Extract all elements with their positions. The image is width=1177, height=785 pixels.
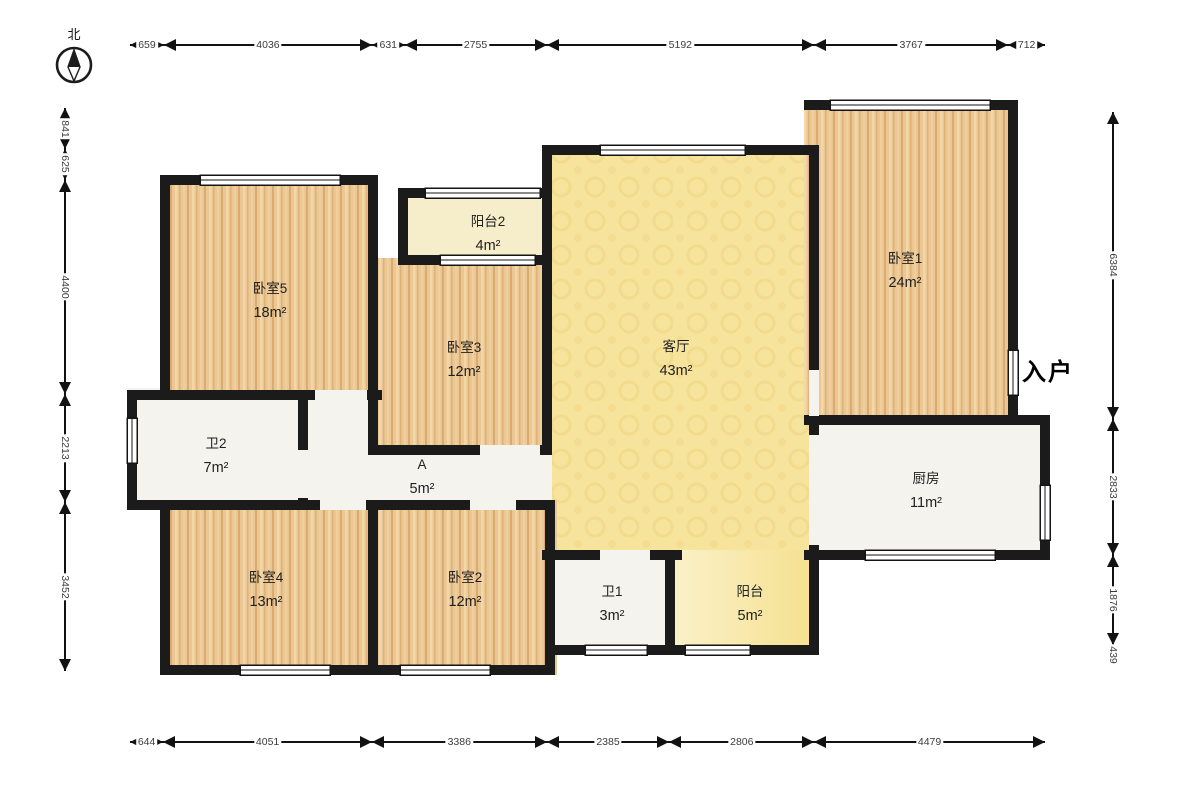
wall: [160, 500, 170, 675]
room-name-bathroom2: 卫2: [205, 436, 226, 451]
dimension-arrow: [59, 659, 71, 671]
dimension-arrow: [59, 394, 71, 406]
window-center-line: [865, 554, 995, 555]
room-area-bathroom2: 7m²: [204, 460, 229, 476]
room-area-bedroom5: 18m²: [253, 305, 286, 321]
door-opening: [480, 445, 540, 455]
door-opening: [470, 500, 516, 510]
wall: [809, 550, 819, 655]
wall: [160, 175, 170, 400]
dimension-value-top-3: 2755: [462, 39, 489, 51]
room-name-living-room: 客厅: [663, 338, 690, 354]
floor-plan: 卧室518m²阳台24m²卧室312m²客厅43m²卧室124m²卫27m²A5…: [0, 0, 1177, 785]
window-center-line: [830, 104, 990, 105]
room-floor: [550, 555, 675, 655]
dimension-value-bottom-0: 644: [136, 736, 158, 748]
dimension-value-left-0: 841: [59, 118, 71, 140]
dimension-arrow: [360, 39, 372, 51]
dimension-value-top-0: 659: [136, 39, 158, 51]
wall: [368, 500, 378, 675]
window-center-line: [200, 179, 340, 180]
dimension-arrow: [360, 736, 372, 748]
dimension-value-bottom-2: 3386: [446, 736, 473, 748]
dimension-arrow: [547, 39, 559, 51]
door-opening: [809, 435, 819, 545]
room-name-balcony2: 阳台2: [471, 214, 506, 229]
dimension-arrow: [1107, 633, 1119, 645]
room-area-kitchen: 11m²: [910, 495, 942, 511]
dimension-arrow: [1107, 112, 1119, 124]
dimension-value-top-5: 3767: [898, 39, 925, 51]
dimension-value-right-1: 2833: [1107, 473, 1119, 500]
dimension-arrow: [59, 490, 71, 502]
dimension-value-top-2: 631: [377, 39, 399, 51]
dimension-value-bottom-3: 2385: [594, 736, 621, 748]
room-area-bedroom1: 24m²: [888, 275, 921, 291]
entry-label: 入户: [1022, 352, 1074, 387]
room-area-bedroom4: 13m²: [249, 594, 282, 610]
door-opening: [600, 550, 650, 560]
window-center-line: [440, 259, 535, 260]
room-name-bedroom2: 卧室2: [448, 569, 483, 585]
room-area-hall-a: 5m²: [410, 481, 435, 497]
dimension-arrow: [405, 39, 417, 51]
room-name-bathroom1: 卫1: [601, 584, 622, 599]
wall: [665, 550, 675, 655]
room-name-bedroom4: 卧室4: [249, 569, 284, 585]
dimension-arrow: [669, 736, 681, 748]
dimension-line-right: 638428331876439: [1104, 112, 1122, 666]
room-area-bedroom3: 12m²: [447, 364, 480, 380]
window-center-line: [400, 669, 490, 670]
room-floor: [160, 500, 378, 675]
wall: [368, 175, 378, 455]
dimension-value-top-6: 712: [1016, 39, 1038, 51]
dimension-arrow: [547, 736, 559, 748]
room-name-kitchen: 厨房: [913, 471, 940, 486]
dimension-arrow: [59, 180, 71, 192]
dimension-arrow: [59, 502, 71, 514]
window-center-line: [585, 649, 647, 650]
dimension-value-left-2: 4400: [59, 273, 71, 300]
dimension-arrow: [802, 736, 814, 748]
dimension-value-bottom-1: 4051: [254, 736, 281, 748]
dimension-line-left: 841625440022133452: [56, 108, 74, 671]
window-center-line: [240, 669, 330, 670]
room-name-bedroom5: 卧室5: [253, 280, 288, 296]
wall: [398, 188, 408, 265]
door-opening: [320, 500, 366, 510]
window-center-line: [1012, 350, 1013, 395]
door-opening: [298, 450, 308, 498]
dimension-value-left-4: 3452: [59, 573, 71, 600]
dimension-arrow: [535, 736, 547, 748]
room-name-bedroom3: 卧室3: [447, 339, 482, 355]
door-opening: [809, 370, 819, 416]
room-area-balcony: 5m²: [738, 608, 763, 624]
dimension-value-right-3: 439: [1107, 645, 1119, 667]
wall: [545, 500, 555, 675]
room-area-living-room: 43m²: [659, 363, 692, 379]
dimension-value-top-1: 4036: [254, 39, 281, 51]
dimension-arrow: [535, 39, 547, 51]
dimension-arrow: [372, 736, 384, 748]
dimension-arrow: [802, 39, 814, 51]
dimension-arrow: [814, 39, 826, 51]
dimension-value-left-1: 625: [59, 154, 71, 176]
room-name-balcony: 阳台: [737, 584, 764, 599]
dimension-arrow: [164, 39, 176, 51]
dimension-arrow: [1107, 407, 1119, 419]
dimension-value-top-4: 5192: [667, 39, 694, 51]
door-opening: [542, 455, 552, 500]
compass-icon: [53, 44, 95, 86]
floor-plan-page: 卧室518m²阳台24m²卧室312m²客厅43m²卧室124m²卫27m²A5…: [0, 0, 1177, 785]
dimension-arrow: [1033, 736, 1045, 748]
compass-north-label: 北: [46, 24, 102, 43]
dimension-arrow: [814, 736, 826, 748]
dimension-arrow: [996, 39, 1008, 51]
room-floor: [809, 420, 1050, 560]
dimension-arrow: [1107, 543, 1119, 555]
dimension-value-bottom-5: 4479: [916, 736, 943, 748]
dimension-arrow: [657, 736, 669, 748]
room-floor: [368, 500, 557, 675]
room-floor: [665, 550, 819, 655]
window-center-line: [685, 649, 750, 650]
dimension-arrow: [1107, 419, 1119, 431]
wall: [160, 665, 555, 675]
dimension-value-right-2: 1876: [1107, 586, 1119, 613]
window-center-line: [1044, 485, 1045, 540]
dimension-arrow: [163, 736, 175, 748]
window-center-line: [600, 149, 745, 150]
room-area-balcony2: 4m²: [476, 238, 501, 254]
door-opening: [315, 390, 367, 400]
dimension-value-right-0: 6384: [1107, 252, 1119, 279]
room-name-hall-a: A: [417, 457, 426, 472]
dimension-value-bottom-4: 2806: [728, 736, 755, 748]
room-name-bedroom1: 卧室1: [888, 250, 923, 266]
window-center-line: [425, 192, 540, 193]
dimension-arrow: [1107, 555, 1119, 567]
window-center-line: [131, 418, 132, 463]
room-floor: [368, 258, 552, 455]
dimension-line-bottom: 64440513386238528064479: [130, 733, 1045, 751]
dimension-arrow: [59, 382, 71, 394]
dimension-value-left-3: 2213: [59, 435, 71, 462]
compass: 北: [46, 24, 102, 96]
room-area-bathroom1: 3m²: [600, 608, 625, 624]
room-area-bedroom2: 12m²: [448, 594, 481, 610]
dimension-line-top: 6594036631275551923767712: [130, 36, 1045, 54]
